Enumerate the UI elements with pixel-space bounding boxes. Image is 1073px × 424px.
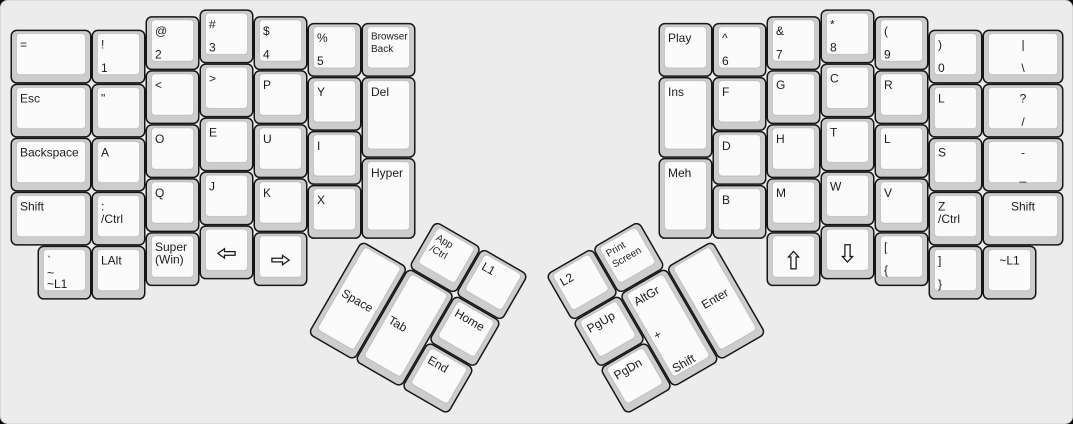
svg-text:Ins: Ins [668, 85, 684, 99]
svg-text:Back: Back [371, 44, 394, 55]
svg-text:6: 6 [722, 54, 729, 68]
svg-text:9: 9 [884, 47, 891, 61]
svg-text:!: ! [101, 38, 104, 52]
svg-text:G: G [776, 78, 785, 92]
svg-text:Shift: Shift [20, 200, 45, 214]
svg-text:P: P [263, 78, 271, 92]
svg-text:W: W [830, 179, 842, 193]
svg-text:Play: Play [668, 31, 691, 45]
svg-text:Meh: Meh [668, 166, 691, 180]
svg-text:T: T [830, 125, 838, 139]
svg-text:C: C [830, 71, 839, 85]
svg-text:J: J [209, 179, 215, 193]
svg-text:U: U [263, 132, 272, 146]
svg-text:7: 7 [776, 47, 783, 61]
svg-text:LAlt: LAlt [101, 254, 122, 268]
svg-text:0: 0 [938, 61, 945, 75]
svg-text:Del: Del [371, 85, 389, 99]
svg-text:S: S [938, 146, 946, 160]
svg-text:L: L [938, 92, 945, 106]
svg-text:]: ] [938, 254, 941, 268]
svg-text:%: % [317, 31, 328, 45]
svg-text:?: ? [1020, 92, 1027, 106]
svg-text:~L1: ~L1 [47, 277, 68, 291]
svg-text:Hyper: Hyper [371, 166, 403, 180]
svg-text:V: V [884, 186, 892, 200]
svg-text:X: X [317, 193, 325, 207]
svg-text:5: 5 [317, 54, 324, 68]
svg-text:A: A [101, 146, 109, 160]
svg-text:-: - [1021, 146, 1025, 160]
svg-text:E: E [209, 125, 217, 139]
svg-text:>: > [209, 71, 216, 85]
svg-text:M: M [776, 186, 786, 200]
svg-text:@: @ [155, 24, 167, 38]
svg-text:O: O [155, 132, 164, 146]
svg-text:8: 8 [830, 41, 837, 55]
svg-text:2: 2 [155, 47, 162, 61]
svg-text:Backspace: Backspace [20, 146, 79, 160]
svg-text:(: ( [884, 24, 888, 38]
svg-text:Browser: Browser [371, 31, 408, 42]
svg-text:Y: Y [317, 85, 325, 99]
svg-text:B: B [722, 193, 730, 207]
svg-text:|: | [1021, 38, 1024, 52]
svg-text:F: F [722, 85, 729, 99]
svg-text:I: I [317, 139, 320, 153]
svg-text:L: L [884, 132, 891, 146]
svg-text:4: 4 [263, 47, 270, 61]
svg-text:Esc: Esc [20, 92, 40, 106]
svg-text:<: < [155, 78, 162, 92]
svg-text:^: ^ [722, 31, 728, 45]
svg-text:}: } [938, 277, 942, 291]
svg-text:#: # [209, 17, 216, 31]
svg-text:/Ctrl: /Ctrl [101, 212, 123, 226]
svg-text:): ) [938, 38, 942, 52]
svg-text:D: D [722, 139, 731, 153]
svg-text:(Win): (Win) [155, 252, 184, 266]
svg-text:H: H [776, 132, 785, 146]
svg-text:=: = [20, 38, 27, 52]
svg-text:&: & [776, 24, 784, 38]
svg-text:{: { [884, 263, 888, 277]
svg-text:_: _ [1019, 169, 1027, 183]
svg-text:K: K [263, 186, 271, 200]
svg-text:": " [101, 92, 105, 106]
svg-text:*: * [830, 17, 835, 31]
svg-text:Q: Q [155, 186, 164, 200]
svg-text:~L1: ~L1 [999, 254, 1020, 268]
svg-text:Shift: Shift [1011, 200, 1036, 214]
svg-text:/Ctrl: /Ctrl [938, 212, 960, 226]
svg-text:$: $ [263, 24, 270, 38]
svg-text:1: 1 [101, 61, 108, 75]
svg-text:3: 3 [209, 41, 216, 55]
svg-text:R: R [884, 78, 893, 92]
